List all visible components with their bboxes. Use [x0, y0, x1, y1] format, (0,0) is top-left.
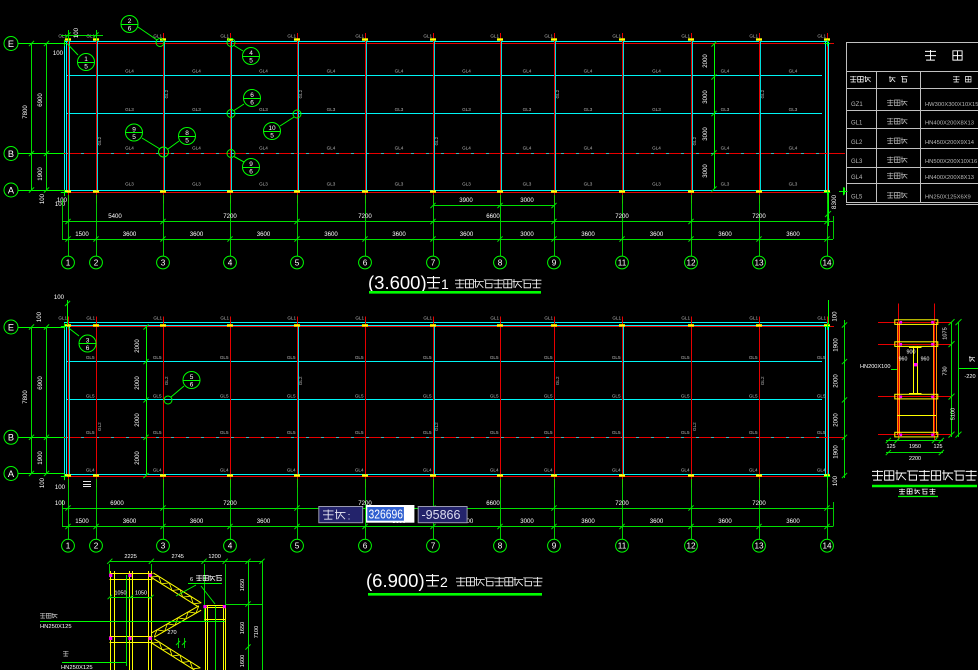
svg-text:6: 6: [190, 577, 193, 583]
svg-text:GL1: GL1: [58, 34, 67, 39]
svg-text:GL4: GL4: [327, 69, 336, 74]
svg-text:1500: 1500: [75, 518, 89, 525]
svg-text:GL4: GL4: [287, 468, 296, 473]
svg-text:2000: 2000: [134, 376, 141, 390]
svg-text:1650: 1650: [240, 579, 246, 591]
svg-text:GL2: GL2: [555, 376, 560, 385]
svg-text:GL2: GL2: [97, 422, 102, 431]
svg-text:12: 12: [686, 542, 696, 551]
svg-text:GL5: GL5: [851, 195, 863, 201]
svg-text:-220: -220: [964, 374, 975, 380]
svg-text:3600: 3600: [581, 231, 595, 238]
svg-text:3600: 3600: [786, 518, 800, 525]
svg-text:1: 1: [441, 276, 449, 292]
svg-text:HN400X200X8X13: HN400X200X8X13: [925, 121, 974, 127]
svg-text:2000: 2000: [833, 374, 840, 388]
svg-text:3600: 3600: [392, 231, 406, 238]
svg-text:3600: 3600: [718, 231, 732, 238]
svg-text:GL4: GL4: [86, 468, 95, 473]
svg-text:GL3: GL3: [523, 107, 532, 112]
svg-text:4: 4: [228, 259, 233, 268]
svg-text:3600: 3600: [123, 518, 137, 525]
svg-text:GL3: GL3: [789, 182, 798, 187]
svg-text:GL4: GL4: [153, 468, 162, 473]
svg-text:GL4: GL4: [523, 69, 532, 74]
svg-text:6: 6: [249, 168, 253, 175]
svg-text:3600: 3600: [460, 231, 474, 238]
svg-text:GL4: GL4: [259, 146, 268, 151]
svg-text:HW300X300X10X15: HW300X300X10X15: [925, 102, 978, 108]
svg-text:HN250X125X6X9: HN250X125X6X9: [925, 195, 971, 201]
svg-text:1900: 1900: [833, 338, 840, 352]
svg-text:A: A: [8, 469, 15, 479]
svg-text:13: 13: [754, 542, 764, 551]
svg-text:GL3: GL3: [584, 182, 593, 187]
svg-text:GL2: GL2: [851, 140, 863, 146]
svg-text:2000: 2000: [134, 451, 141, 465]
svg-text:GL4: GL4: [789, 146, 798, 151]
svg-text:7: 7: [431, 542, 436, 551]
svg-text:1050: 1050: [115, 591, 127, 597]
svg-text:GL2: GL2: [97, 136, 102, 145]
svg-text:GL4: GL4: [192, 146, 201, 151]
svg-text:5: 5: [295, 259, 300, 268]
svg-text:100: 100: [39, 193, 46, 204]
svg-text:GL3: GL3: [462, 182, 471, 187]
svg-text:5: 5: [190, 374, 194, 381]
svg-text:11: 11: [618, 542, 627, 551]
svg-text:960: 960: [899, 357, 908, 363]
svg-text:GL2: GL2: [760, 89, 765, 98]
svg-text:5: 5: [84, 63, 88, 70]
svg-text:900: 900: [907, 350, 916, 356]
svg-text:GL1: GL1: [220, 316, 229, 321]
svg-text:3000: 3000: [702, 164, 709, 178]
svg-text:8: 8: [498, 542, 503, 551]
svg-text:3600: 3600: [786, 231, 800, 238]
svg-text:GL4: GL4: [259, 69, 268, 74]
svg-text:GL1: GL1: [287, 316, 296, 321]
svg-text:2000: 2000: [134, 413, 141, 427]
svg-text:GL4: GL4: [652, 146, 661, 151]
svg-text:6: 6: [250, 92, 254, 99]
svg-text:HN400X200X8X13: HN400X200X8X13: [925, 175, 974, 181]
svg-text:GL3: GL3: [462, 107, 471, 112]
svg-text:3600: 3600: [581, 518, 595, 525]
svg-text:7200: 7200: [223, 500, 237, 507]
svg-text:GL4: GL4: [395, 69, 404, 74]
svg-text:GL4: GL4: [220, 468, 229, 473]
svg-text:1: 1: [84, 56, 88, 63]
svg-text:7200: 7200: [223, 213, 237, 220]
svg-text:9: 9: [552, 542, 557, 551]
svg-text:3000: 3000: [520, 197, 534, 204]
svg-text:6: 6: [363, 259, 368, 268]
svg-text:2: 2: [128, 18, 132, 25]
svg-text:7800: 7800: [22, 105, 29, 119]
svg-text:3900: 3900: [459, 197, 473, 204]
svg-text:GL2: GL2: [434, 136, 439, 145]
svg-text:GL3: GL3: [327, 107, 336, 112]
svg-text:(6.900): (6.900): [366, 570, 425, 591]
svg-text:GL5: GL5: [220, 430, 229, 435]
svg-text:GL1: GL1: [153, 316, 162, 321]
svg-text:GL1: GL1: [86, 316, 95, 321]
svg-text:B: B: [8, 149, 14, 159]
svg-text:2000: 2000: [833, 413, 840, 427]
svg-text:11: 11: [618, 259, 627, 268]
svg-text:GL5: GL5: [544, 430, 553, 435]
svg-text:GZ1: GZ1: [851, 102, 863, 108]
svg-text:GL3: GL3: [721, 182, 730, 187]
svg-text:GL5: GL5: [355, 430, 364, 435]
svg-text:326696: 326696: [369, 508, 404, 522]
svg-text:B: B: [8, 433, 14, 443]
svg-text:730: 730: [943, 366, 949, 375]
svg-text:100: 100: [73, 27, 80, 38]
svg-text:GL2: GL2: [298, 89, 303, 98]
svg-text:2000: 2000: [134, 339, 141, 353]
svg-text:GL4: GL4: [395, 146, 404, 151]
svg-text:GL2: GL2: [555, 89, 560, 98]
svg-text:GL4: GL4: [192, 69, 201, 74]
svg-text:5: 5: [249, 57, 253, 64]
svg-text:3000: 3000: [520, 231, 534, 238]
svg-text:3: 3: [161, 259, 166, 268]
svg-text:100: 100: [39, 477, 46, 488]
svg-text:8: 8: [185, 130, 189, 137]
svg-text:GL5: GL5: [153, 393, 162, 398]
svg-text:7200: 7200: [752, 213, 766, 220]
svg-text:3: 3: [161, 542, 166, 551]
svg-text:2: 2: [440, 574, 448, 590]
svg-text:GL5: GL5: [287, 355, 296, 360]
svg-text:3000: 3000: [520, 518, 534, 525]
svg-text:12: 12: [686, 259, 696, 268]
svg-text:GL4: GL4: [125, 146, 134, 151]
svg-text:GL4: GL4: [355, 468, 364, 473]
svg-text:GL4: GL4: [681, 468, 690, 473]
svg-text:3600: 3600: [650, 231, 664, 238]
svg-text:8300: 8300: [831, 194, 838, 209]
svg-text:GL1: GL1: [490, 316, 499, 321]
svg-text:270: 270: [167, 630, 176, 636]
svg-text:10: 10: [268, 125, 276, 132]
svg-text:3000: 3000: [702, 90, 709, 104]
svg-text:7200: 7200: [615, 213, 629, 220]
svg-text:6900: 6900: [110, 500, 124, 507]
svg-text:GL5: GL5: [423, 430, 432, 435]
svg-text:GL4: GL4: [749, 468, 758, 473]
svg-text:GL3: GL3: [652, 182, 661, 187]
svg-text:1500: 1500: [75, 231, 89, 238]
svg-text:125: 125: [934, 444, 943, 450]
svg-text:2200: 2200: [909, 456, 921, 462]
svg-text:GL4: GL4: [612, 468, 621, 473]
svg-text:7200: 7200: [615, 500, 629, 507]
svg-text:GL1: GL1: [423, 316, 432, 321]
svg-text:GL1: GL1: [220, 34, 229, 39]
svg-text:GL3: GL3: [125, 182, 134, 187]
svg-text:GL3: GL3: [584, 107, 593, 112]
svg-text:GL4: GL4: [490, 468, 499, 473]
svg-text:7200: 7200: [752, 500, 766, 507]
svg-text:GL5: GL5: [817, 355, 826, 360]
svg-text:9: 9: [552, 259, 557, 268]
svg-text:14: 14: [822, 259, 832, 268]
svg-text:GL4: GL4: [544, 468, 553, 473]
svg-text:GL4: GL4: [423, 468, 432, 473]
svg-text::: :: [348, 512, 351, 523]
svg-text:6900: 6900: [37, 376, 44, 390]
svg-text:6: 6: [363, 542, 368, 551]
svg-text:1: 1: [66, 259, 71, 268]
svg-text:14: 14: [822, 542, 832, 551]
svg-text:100: 100: [55, 500, 66, 507]
svg-text:GL4: GL4: [584, 69, 593, 74]
svg-text:6: 6: [86, 345, 90, 352]
svg-text:GL1: GL1: [612, 34, 621, 39]
svg-text:GL5: GL5: [287, 430, 296, 435]
svg-text:7100: 7100: [254, 626, 260, 638]
svg-text:GL1: GL1: [58, 316, 67, 321]
svg-text:GL3: GL3: [395, 182, 404, 187]
svg-text:7800: 7800: [22, 390, 29, 404]
svg-text:6600: 6600: [486, 213, 500, 220]
svg-text:GL5: GL5: [86, 430, 95, 435]
svg-text:5: 5: [270, 132, 274, 139]
svg-text:GL5: GL5: [423, 393, 432, 398]
svg-text:GL5: GL5: [86, 355, 95, 360]
svg-text:3600: 3600: [190, 518, 204, 525]
svg-text:GL1: GL1: [681, 316, 690, 321]
svg-text:GL5: GL5: [681, 430, 690, 435]
svg-text:GL1: GL1: [749, 34, 758, 39]
svg-text:GL5: GL5: [749, 355, 758, 360]
svg-text:E: E: [8, 322, 14, 332]
svg-text:GL2: GL2: [692, 136, 697, 145]
svg-text:HN200X100: HN200X100: [860, 364, 890, 370]
svg-text:GL1: GL1: [749, 316, 758, 321]
svg-text:GL4: GL4: [789, 69, 798, 74]
svg-text:GL1: GL1: [287, 34, 296, 39]
svg-text:1900: 1900: [37, 451, 44, 465]
svg-text:HN250X125: HN250X125: [40, 624, 72, 630]
svg-text:GL1: GL1: [355, 316, 364, 321]
svg-text:GL5: GL5: [220, 355, 229, 360]
svg-text:2225: 2225: [124, 554, 136, 560]
svg-text:3600: 3600: [650, 518, 664, 525]
svg-text:1950: 1950: [909, 444, 921, 450]
svg-text:2745: 2745: [171, 554, 183, 560]
svg-text:-95866: -95866: [422, 508, 461, 522]
svg-text:GL5: GL5: [544, 393, 553, 398]
svg-text:GL5: GL5: [817, 393, 826, 398]
svg-text:GL5: GL5: [544, 355, 553, 360]
svg-text:1200: 1200: [208, 554, 220, 560]
svg-text:GL3: GL3: [721, 107, 730, 112]
svg-text:9: 9: [132, 126, 136, 133]
svg-text:GL4: GL4: [523, 146, 532, 151]
svg-text:5: 5: [132, 134, 136, 141]
svg-text:13: 13: [754, 259, 764, 268]
svg-text:6: 6: [190, 381, 194, 388]
svg-text:GL5: GL5: [817, 430, 826, 435]
svg-text:GL4: GL4: [721, 69, 730, 74]
svg-text:GL5: GL5: [220, 393, 229, 398]
svg-text:A: A: [8, 185, 15, 195]
svg-text:GL2: GL2: [434, 422, 439, 431]
svg-text:GL2: GL2: [692, 422, 697, 431]
svg-text:3600: 3600: [324, 231, 338, 238]
svg-text:7: 7: [431, 259, 436, 268]
svg-text:100: 100: [832, 475, 839, 486]
svg-text:GL5: GL5: [86, 393, 95, 398]
svg-text:HN250X125: HN250X125: [61, 665, 93, 670]
svg-text:HN500X200X10X16: HN500X200X10X16: [925, 159, 977, 165]
svg-text:2000: 2000: [702, 54, 709, 68]
svg-text:GL1: GL1: [817, 34, 826, 39]
svg-text:5: 5: [295, 542, 300, 551]
svg-text:3600: 3600: [257, 231, 271, 238]
svg-text:GL4: GL4: [817, 468, 826, 473]
svg-text:5100: 5100: [951, 408, 957, 420]
svg-text:GL5: GL5: [681, 393, 690, 398]
svg-text:GL1: GL1: [86, 34, 95, 39]
svg-text:GL4: GL4: [851, 175, 863, 181]
svg-text:6900: 6900: [37, 93, 44, 107]
svg-text:4: 4: [249, 50, 253, 57]
svg-text:2: 2: [94, 259, 99, 268]
svg-text:GL5: GL5: [612, 355, 621, 360]
svg-text:GL5: GL5: [153, 430, 162, 435]
svg-text:3600: 3600: [190, 231, 204, 238]
svg-text:125: 125: [887, 444, 896, 450]
svg-text:100: 100: [832, 311, 839, 322]
svg-text:GL1: GL1: [681, 34, 690, 39]
svg-text:4: 4: [228, 542, 233, 551]
svg-text:GL1: GL1: [817, 316, 826, 321]
svg-text:6600: 6600: [486, 500, 500, 507]
svg-text:GL4: GL4: [462, 146, 471, 151]
svg-text:GL5: GL5: [355, 355, 364, 360]
svg-text:GL3: GL3: [125, 107, 134, 112]
svg-text:GL4: GL4: [462, 69, 471, 74]
svg-text:3600: 3600: [123, 231, 137, 238]
svg-text:1650: 1650: [240, 622, 246, 634]
svg-text:3600: 3600: [257, 518, 271, 525]
svg-text:3: 3: [86, 337, 90, 344]
svg-text:8: 8: [498, 259, 503, 268]
svg-text:GL4: GL4: [584, 146, 593, 151]
svg-text:2: 2: [94, 542, 99, 551]
svg-text:GL4: GL4: [721, 146, 730, 151]
svg-text:GL2: GL2: [164, 89, 169, 98]
svg-text:GL5: GL5: [153, 355, 162, 360]
svg-text:GL2: GL2: [760, 376, 765, 385]
svg-text:100: 100: [53, 50, 64, 57]
svg-text:5: 5: [185, 137, 189, 144]
svg-text:1: 1: [66, 542, 71, 551]
svg-text:HN450X200X9X14: HN450X200X9X14: [925, 140, 975, 146]
svg-text:6: 6: [250, 99, 254, 106]
svg-text:3600: 3600: [718, 518, 732, 525]
svg-text:GL3: GL3: [259, 182, 268, 187]
svg-text:GL4: GL4: [125, 69, 134, 74]
svg-text:GL5: GL5: [490, 355, 499, 360]
svg-text:GL5: GL5: [749, 393, 758, 398]
svg-text:1050: 1050: [135, 591, 147, 597]
svg-text:1900: 1900: [37, 167, 44, 181]
svg-text:9: 9: [249, 161, 253, 168]
svg-text:(3.600): (3.600): [368, 272, 427, 293]
svg-text:GL3: GL3: [259, 107, 268, 112]
svg-text:GL5: GL5: [612, 430, 621, 435]
svg-text:GL1: GL1: [490, 34, 499, 39]
svg-text:100: 100: [54, 294, 65, 301]
svg-text:GL5: GL5: [287, 393, 296, 398]
svg-text:GL4: GL4: [327, 146, 336, 151]
svg-text:3000: 3000: [702, 127, 709, 141]
svg-text:7200: 7200: [358, 213, 372, 220]
svg-text:GL1: GL1: [544, 34, 553, 39]
svg-text:GL1: GL1: [851, 121, 863, 127]
svg-text:GL3: GL3: [851, 159, 863, 165]
svg-text:GL5: GL5: [612, 393, 621, 398]
svg-text:GL3: GL3: [395, 107, 404, 112]
svg-text:GL3: GL3: [192, 182, 201, 187]
svg-text:GL5: GL5: [681, 355, 690, 360]
svg-text:GL1: GL1: [544, 316, 553, 321]
svg-text:5400: 5400: [108, 213, 122, 220]
svg-text:E: E: [8, 39, 14, 49]
svg-text:GL4: GL4: [652, 69, 661, 74]
svg-text:GL3: GL3: [192, 107, 201, 112]
svg-text:GL3: GL3: [523, 182, 532, 187]
svg-text:GL3: GL3: [789, 107, 798, 112]
svg-text:GL1: GL1: [423, 34, 432, 39]
svg-text:1900: 1900: [833, 445, 840, 459]
svg-text:GL5: GL5: [423, 355, 432, 360]
svg-text:GL5: GL5: [355, 393, 364, 398]
svg-text:GL2: GL2: [298, 376, 303, 385]
svg-text:1600: 1600: [240, 655, 246, 667]
svg-text:GL5: GL5: [749, 430, 758, 435]
svg-text:100: 100: [36, 311, 43, 322]
svg-text:GL5: GL5: [490, 393, 499, 398]
svg-text:GL5: GL5: [490, 430, 499, 435]
svg-text:960: 960: [921, 357, 930, 363]
svg-text:100: 100: [55, 484, 66, 491]
svg-text:6: 6: [128, 25, 132, 32]
svg-text:1075: 1075: [943, 327, 949, 339]
svg-text:GL1: GL1: [355, 34, 364, 39]
svg-text:GL3: GL3: [652, 107, 661, 112]
svg-text:GL1: GL1: [612, 316, 621, 321]
svg-text:GL2: GL2: [164, 376, 169, 385]
svg-text:GL3: GL3: [327, 182, 336, 187]
